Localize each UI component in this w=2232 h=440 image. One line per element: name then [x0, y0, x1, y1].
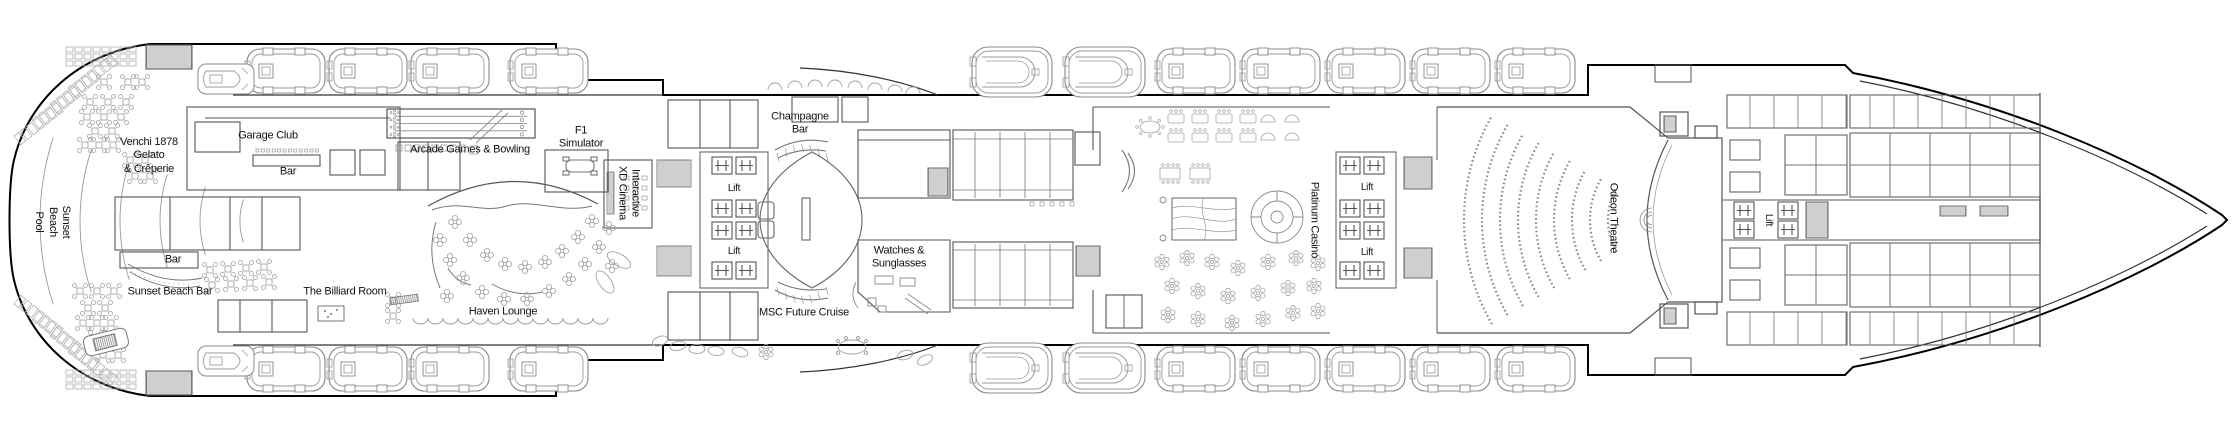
lift-icon [1364, 222, 1384, 239]
slot-cluster-icon [1165, 278, 1179, 293]
label-venchi: Venchi 1878 Gelato & Crêperie [120, 136, 178, 176]
lounge-table-icon [585, 214, 598, 227]
table-icon [104, 316, 119, 331]
lounge-table-icon [562, 272, 575, 285]
lounge-table-icon [571, 230, 584, 243]
table-icon [135, 75, 150, 90]
lift-icon [712, 222, 732, 239]
slot-cluster-icon [1281, 280, 1295, 295]
slot-cluster-icon [1307, 278, 1321, 293]
label-f1-simulator: F1 Simulator [559, 125, 603, 152]
lounge-table-icon [463, 233, 476, 246]
label-lift-casino-1: Lift [1361, 182, 1373, 194]
table-icon [257, 260, 272, 275]
casino-lift-bank [1340, 157, 1384, 279]
lounge-table-icon [440, 289, 453, 302]
label-sunset-beach-pool: Sunset Beach Pool [32, 206, 72, 239]
slot-cluster-icon [1205, 254, 1219, 269]
table-icon [239, 261, 254, 276]
lounge-table-icon [518, 260, 531, 273]
label-garage-club: Garage Club [238, 129, 298, 142]
deck-plan-drawing [0, 0, 2232, 440]
casino-gaming-tables [1136, 110, 1299, 184]
slot-cluster-icon [1231, 260, 1245, 275]
lift-icon [712, 262, 732, 279]
table-icon [97, 75, 112, 90]
table-icon [203, 263, 218, 278]
casino-stage [1172, 198, 1236, 240]
slot-cluster-icon [1191, 311, 1205, 326]
label-xd-cinema: Interactive XD Cinema [615, 166, 642, 220]
table-icon [73, 284, 88, 299]
stern-platform [82, 327, 130, 357]
restaurant-bar-stools [1030, 202, 1074, 206]
shop-rooms [853, 130, 950, 314]
slot-cluster-icon [759, 344, 773, 359]
lift-icon [1778, 221, 1798, 238]
slot-cluster-icon [1155, 254, 1169, 269]
lifeboat-icon [409, 48, 489, 94]
lounge-table-icon [498, 257, 511, 270]
lounge-table-icon [538, 255, 551, 268]
table-icon [90, 316, 105, 331]
rescue-boat-icon [198, 64, 254, 94]
lift-icon [736, 157, 756, 174]
table-icon [78, 138, 93, 153]
label-champagne-bar: Champagne Bar [771, 111, 829, 138]
lifeboat-icon [1155, 48, 1235, 94]
lifeboat-icon [1240, 48, 1320, 94]
table-icon [81, 301, 96, 316]
tender-boat-icon [1063, 343, 1145, 393]
restaurant-rooms [928, 130, 1142, 328]
lounge-table-icon [475, 285, 488, 298]
label-lift-mid-1: Lift [728, 183, 740, 195]
casino-slot-machines [759, 250, 1325, 359]
midship-lift-bank [712, 157, 756, 279]
label-billiard-room: The Billiard Room [303, 285, 386, 298]
lift-icon [712, 200, 732, 217]
table-icon [98, 301, 113, 316]
table-icon [386, 309, 401, 324]
lift-icon [1340, 222, 1360, 239]
lounge-table-icon [520, 292, 533, 305]
slot-cluster-icon [1286, 305, 1300, 320]
lifeboat-icon [1410, 346, 1490, 392]
theatre-seating [1464, 116, 1617, 324]
lifeboat-icon [327, 48, 407, 94]
lifeboat-icon [508, 346, 588, 392]
slot-cluster-icon [1256, 311, 1270, 326]
table-icon [106, 138, 121, 153]
tender-boat-icon [970, 343, 1052, 393]
label-garage-bar: Bar [280, 165, 296, 178]
label-arcade-bowling: Arcade Games & Bowling [410, 143, 530, 156]
lifeboat-icon [1495, 48, 1575, 94]
table-icon [80, 110, 95, 125]
haven-escalator [390, 294, 419, 305]
label-msc-future-cruise: MSC Future Cruise [759, 306, 849, 319]
lounge-table-icon [578, 257, 591, 270]
label-sunset-beach-bar: Sunset Beach Bar [128, 285, 213, 298]
garage-bar-stools [256, 149, 318, 152]
table-icon [262, 275, 277, 290]
label-lift-bow: Lift [1762, 214, 1774, 226]
lift-icon [1734, 202, 1754, 219]
rescue-boat-icon [198, 346, 254, 376]
haven-lounge-stage [428, 181, 598, 293]
label-watches-sunglasses: Watches & Sunglasses [872, 245, 926, 272]
slot-cluster-icon [1191, 283, 1205, 298]
lounge-table-icon [542, 284, 555, 297]
label-odeon-theatre: Odeon Theatre [1606, 183, 1619, 254]
lounge-table-icon [448, 215, 461, 228]
lounge-table-icon [443, 253, 456, 266]
label-pool-bar: Bar [165, 253, 181, 266]
table-icon [114, 110, 129, 125]
bowling-lanes [387, 109, 535, 138]
lifeboat-icon [1325, 346, 1405, 392]
label-lift-casino-2: Lift [1361, 247, 1373, 259]
lifeboat-icon [409, 346, 489, 392]
lifeboat-icon [1325, 48, 1405, 94]
future-cruise-sofas [651, 334, 934, 367]
deck-plan: Venchi 1878 Gelato & Crêperie Garage Clu… [0, 0, 2232, 440]
label-haven-lounge: Haven Lounge [469, 305, 538, 318]
lounge-table-icon [555, 244, 568, 257]
tender-boat-icon [1063, 47, 1145, 97]
atrium [758, 140, 862, 300]
lifeboat-icon [1155, 346, 1235, 392]
table-icon [119, 95, 134, 110]
lift-icon [1340, 262, 1360, 279]
label-platinum-casino: Platinum Casino [1307, 182, 1320, 258]
slot-cluster-icon [1161, 307, 1175, 322]
haven-lounge-edge [413, 318, 608, 324]
table-icon [107, 284, 122, 299]
midship-rooms [668, 100, 768, 340]
lifeboat-icon [245, 346, 325, 392]
midship-stairs [657, 160, 691, 276]
table-icon [101, 95, 116, 110]
lifeboat-icon [508, 48, 588, 94]
table-icon [121, 75, 136, 90]
table-icon [83, 95, 98, 110]
haven-lounge-tables [433, 214, 618, 305]
lounge-table-icon [480, 248, 493, 261]
slot-cluster-icon [1261, 254, 1275, 269]
lift-icon [1340, 200, 1360, 217]
lifeboat-icon [1240, 346, 1320, 392]
lift-icon [736, 200, 756, 217]
lifeboats [198, 47, 1575, 393]
lifeboat-icon [1495, 346, 1575, 392]
lift-icon [736, 222, 756, 239]
tender-boat-icon [970, 47, 1052, 97]
service-rooms [115, 197, 307, 332]
table-icon [224, 277, 239, 292]
casino-lift-lobby [1336, 107, 1437, 333]
slot-cluster-icon [1180, 250, 1194, 265]
table-icon [243, 276, 258, 291]
lifeboat-icon [1410, 48, 1490, 94]
lounge-table-icon [497, 292, 510, 305]
lift-icon [1364, 200, 1384, 217]
label-lift-mid-2: Lift [728, 246, 740, 258]
lift-icon [1778, 202, 1798, 219]
table-icon [92, 138, 107, 153]
table-icon [105, 124, 120, 139]
lift-icon [1364, 262, 1384, 279]
lift-icon [1734, 221, 1754, 238]
lift-icon [1364, 157, 1384, 174]
bow-cabins [1655, 65, 2040, 375]
lift-icon [736, 262, 756, 279]
slot-cluster-icon [1311, 303, 1325, 318]
table-icon [97, 110, 112, 125]
lifeboat-icon [245, 48, 325, 94]
table-icon [90, 284, 105, 299]
lift-icon [1340, 157, 1360, 174]
f1-simulator-room [545, 150, 608, 192]
table-icon [76, 316, 91, 331]
lifeboat-icon [327, 346, 407, 392]
stern-stairs [146, 45, 192, 395]
slot-cluster-icon [1225, 315, 1239, 330]
slot-cluster-icon [1251, 285, 1265, 300]
slot-cluster-icon [1289, 250, 1303, 265]
lounge-table-icon [433, 233, 446, 246]
slot-cluster-icon [1221, 288, 1235, 303]
table-icon [88, 124, 103, 139]
lounge-table-icon [592, 240, 605, 253]
billiard-table [318, 306, 344, 321]
table-icon [221, 262, 236, 277]
lift-icon [712, 157, 732, 174]
